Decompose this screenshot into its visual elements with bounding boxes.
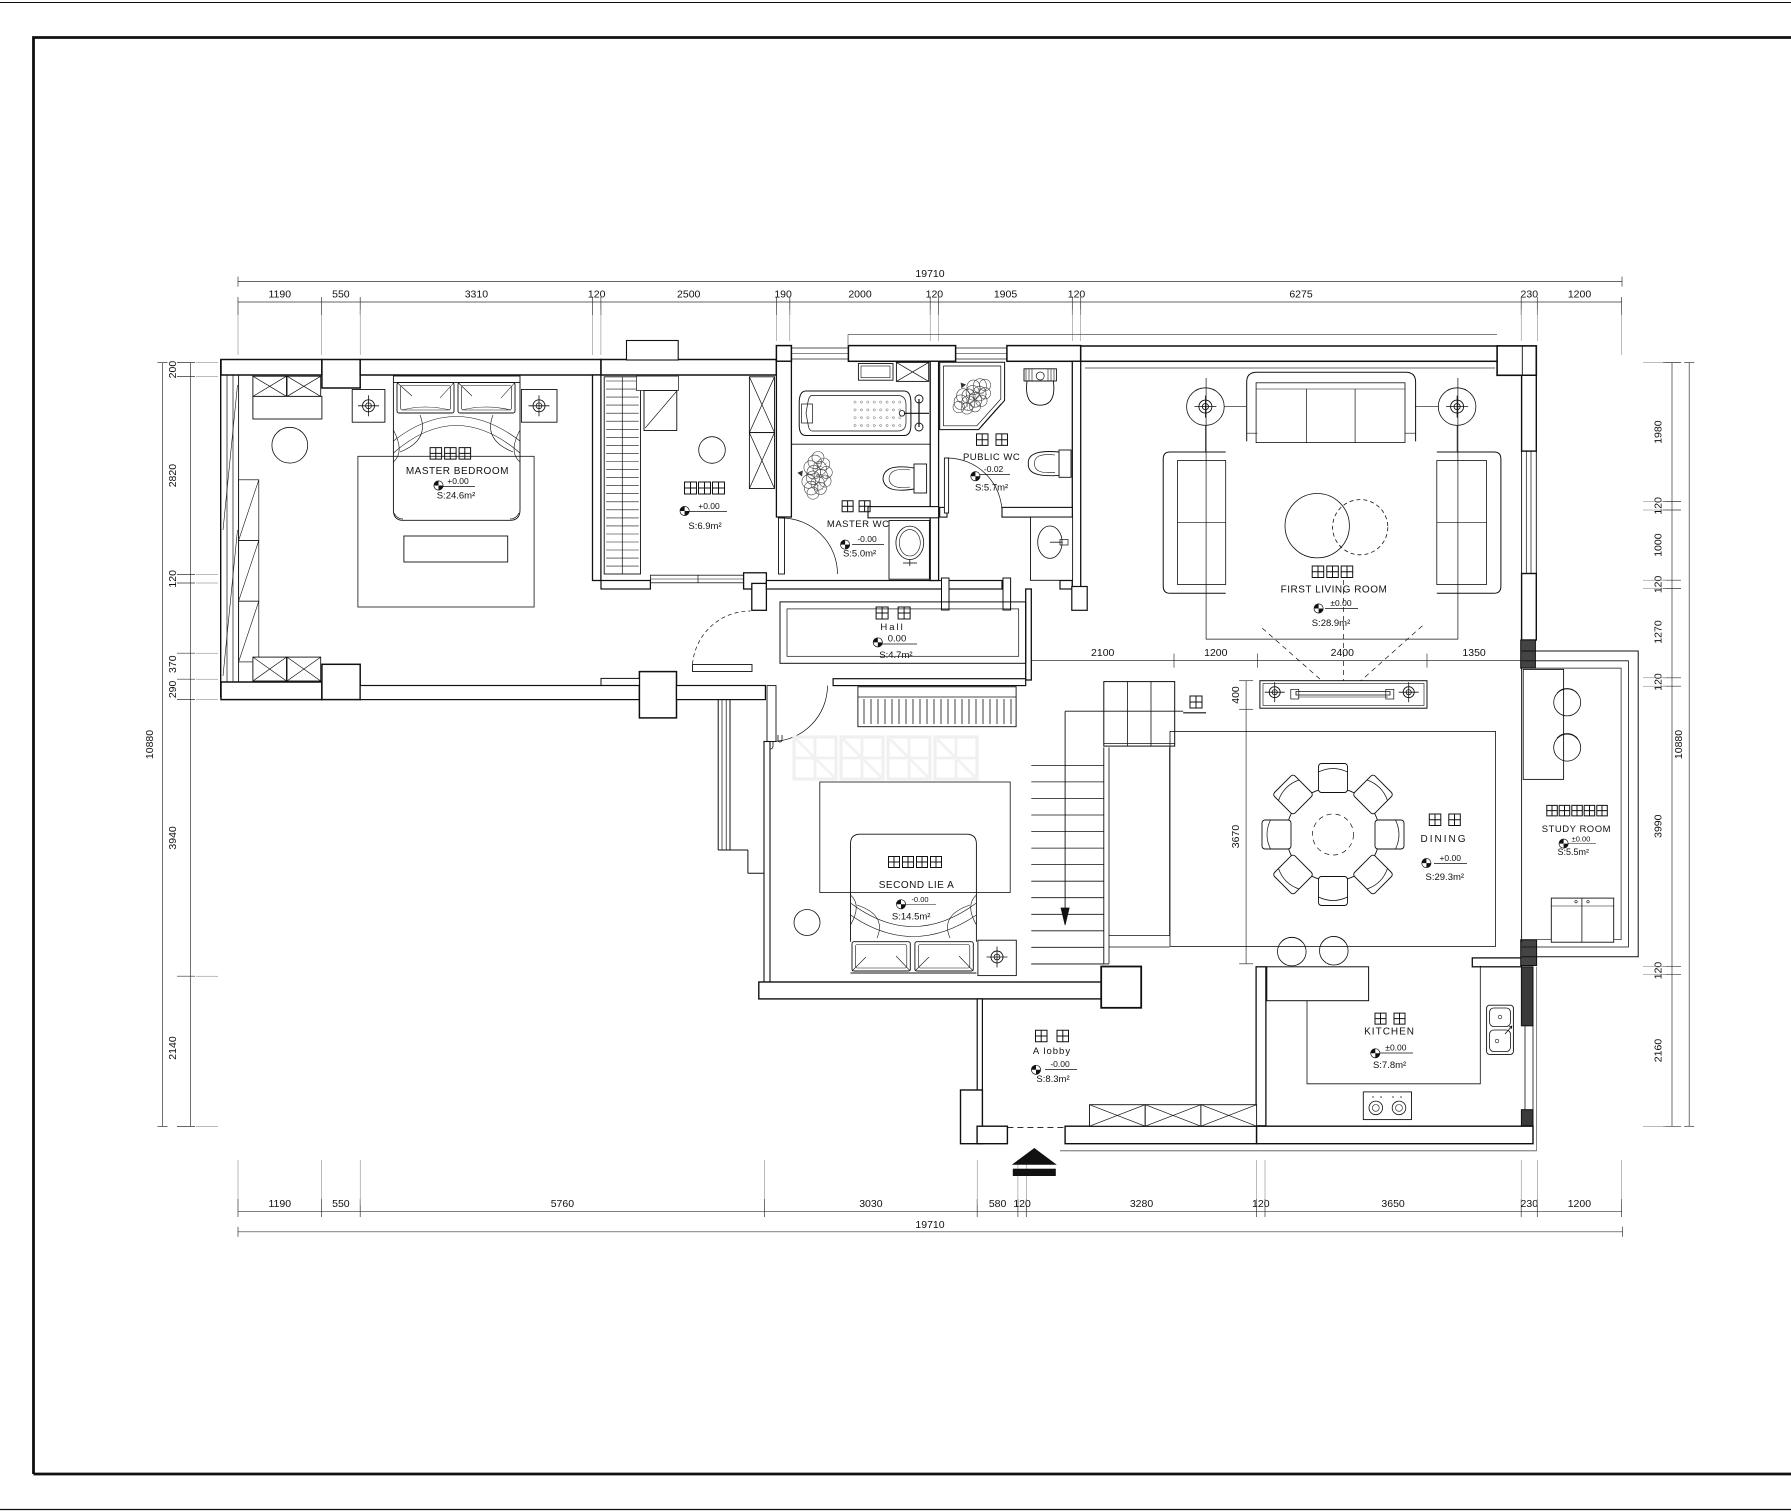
svg-text:-0.02: -0.02 [984,464,1004,474]
svg-text:190: 190 [774,289,792,301]
svg-text:120: 120 [1653,575,1665,593]
svg-text:120: 120 [1653,673,1665,691]
svg-text:S:8.3m²: S:8.3m² [1036,1074,1069,1085]
svg-text:230: 230 [1521,289,1539,301]
svg-text:3310: 3310 [465,289,489,301]
svg-text:1270: 1270 [1653,620,1665,644]
svg-text:400: 400 [1230,686,1242,704]
svg-text:DINING: DINING [1421,834,1468,845]
svg-text:200: 200 [167,361,179,379]
svg-text:6275: 6275 [1289,289,1313,301]
svg-text:PUBLIC WC: PUBLIC WC [963,452,1020,463]
svg-text:580: 580 [989,1198,1007,1210]
svg-text:+0.00: +0.00 [698,501,720,511]
svg-text:2000: 2000 [848,289,872,301]
svg-text:S:5.5m²: S:5.5m² [1558,847,1590,857]
svg-text:550: 550 [332,1198,350,1210]
svg-text:10880: 10880 [1673,730,1685,759]
svg-text:3030: 3030 [859,1198,883,1210]
svg-text:S:29.3m²: S:29.3m² [1426,872,1465,883]
svg-text:230: 230 [1521,1198,1539,1210]
svg-text:3940: 3940 [167,826,179,850]
svg-text:S:28.9m²: S:28.9m² [1312,618,1351,629]
svg-text:370: 370 [167,655,179,673]
svg-text:+0.00: +0.00 [447,476,469,486]
svg-text:S:6.9m²: S:6.9m² [688,521,721,532]
svg-text:120: 120 [588,289,606,301]
svg-text:STUDY ROOM: STUDY ROOM [1542,824,1611,835]
svg-text:1200: 1200 [1568,1198,1592,1210]
svg-text:-0.00: -0.00 [857,534,877,544]
svg-text:2400: 2400 [1331,647,1355,659]
svg-text:S:7.8m²: S:7.8m² [1373,1060,1406,1071]
svg-text:KITCHEN: KITCHEN [1364,1027,1415,1038]
svg-text:120: 120 [1653,497,1665,515]
svg-text:3990: 3990 [1653,814,1665,838]
svg-text:0.00: 0.00 [888,634,907,645]
svg-text:120: 120 [1653,962,1665,980]
svg-text:1350: 1350 [1462,647,1486,659]
svg-text:MASTER WC: MASTER WC [827,519,890,530]
svg-text:+0.00: +0.00 [1439,853,1461,863]
svg-text:5760: 5760 [551,1198,575,1210]
svg-text:10880: 10880 [144,730,156,759]
svg-text:S:4.7m²: S:4.7m² [879,650,912,661]
svg-text:S:5.0m²: S:5.0m² [843,549,876,560]
svg-text:1190: 1190 [269,1198,292,1210]
svg-text:2160: 2160 [1653,1039,1665,1063]
svg-text:±0.00: ±0.00 [1330,598,1351,608]
svg-text:-0.00: -0.00 [911,895,928,904]
svg-text:FIRST LIVING ROOM: FIRST LIVING ROOM [1281,585,1388,596]
svg-text:3670: 3670 [1230,825,1242,849]
svg-text:120: 120 [1068,289,1086,301]
svg-text:Hall: Hall [880,622,904,633]
svg-text:2500: 2500 [677,289,701,301]
svg-text:1000: 1000 [1653,533,1665,557]
svg-text:19710: 19710 [915,268,944,280]
svg-text:±0.00: ±0.00 [1572,835,1591,844]
svg-text:19710: 19710 [915,1219,944,1231]
svg-text:550: 550 [332,289,350,301]
svg-text:120: 120 [926,289,944,301]
svg-text:1200: 1200 [1568,289,1592,301]
svg-text:1905: 1905 [994,289,1018,301]
svg-text:2140: 2140 [167,1036,179,1060]
svg-text:±0.00: ±0.00 [1385,1043,1406,1053]
svg-text:3650: 3650 [1381,1198,1405,1210]
svg-text:-0.00: -0.00 [1050,1059,1070,1069]
svg-text:3280: 3280 [1130,1198,1154,1210]
svg-text:2100: 2100 [1091,647,1115,659]
svg-text:1190: 1190 [269,289,292,301]
svg-text:120: 120 [1013,1198,1031,1210]
svg-text:S:5.7m²: S:5.7m² [975,483,1008,494]
svg-text:1980: 1980 [1653,420,1665,444]
svg-text:S:24.6m²: S:24.6m² [437,491,476,502]
svg-text:1200: 1200 [1204,647,1228,659]
svg-text:S:14.5m²: S:14.5m² [892,912,931,923]
svg-text:SECOND LIE A: SECOND LIE A [879,880,954,891]
svg-text:120: 120 [167,570,179,588]
svg-text:2820: 2820 [167,464,179,488]
svg-text:290: 290 [167,680,179,698]
svg-text:A lobby: A lobby [1033,1046,1071,1057]
svg-text:120: 120 [1252,1198,1270,1210]
